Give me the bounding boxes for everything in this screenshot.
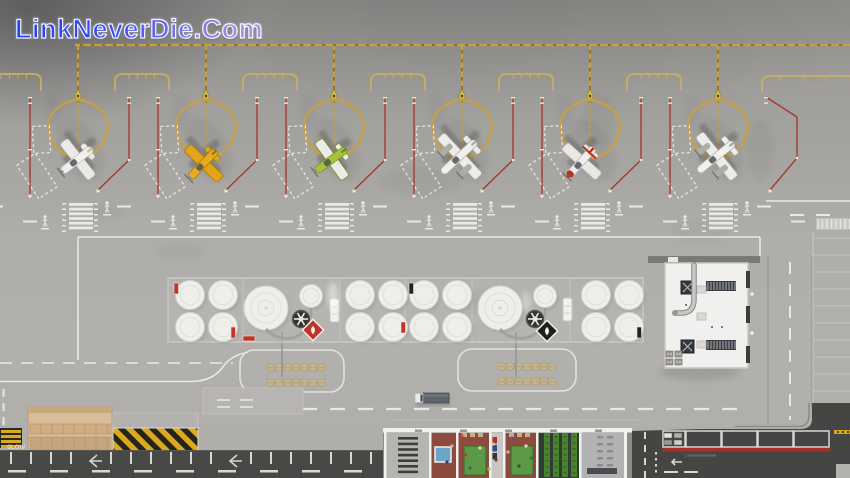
crosswalk-stripe bbox=[709, 227, 733, 230]
person[interactable] bbox=[524, 444, 527, 447]
cargo-pallet[interactable] bbox=[301, 364, 308, 371]
loading-door[interactable] bbox=[746, 271, 750, 288]
fuel-tank-large[interactable] bbox=[478, 286, 522, 330]
person[interactable] bbox=[478, 446, 481, 449]
parking-canopy[interactable] bbox=[816, 218, 850, 230]
person[interactable] bbox=[445, 460, 448, 463]
warehouse-building[interactable] bbox=[648, 256, 760, 380]
pedestrian-icon bbox=[553, 215, 561, 229]
yellow-crosswalk-bar bbox=[1, 440, 21, 443]
fuel-tank-large[interactable] bbox=[244, 286, 288, 330]
crosswalk-stripe bbox=[581, 222, 605, 225]
terminal-building[interactable] bbox=[383, 428, 632, 478]
fuel-tank-small[interactable] bbox=[176, 281, 205, 310]
person[interactable] bbox=[468, 466, 471, 469]
depot-red-line bbox=[663, 448, 830, 452]
crosswalk-stripe bbox=[197, 217, 221, 220]
crosswalk-stripe bbox=[581, 203, 605, 206]
crosswalk-stripe bbox=[197, 222, 221, 225]
cargo-pallet[interactable] bbox=[541, 378, 548, 385]
hazard-tag bbox=[243, 336, 255, 341]
fuel-tank-small[interactable] bbox=[615, 281, 644, 310]
fuel-tank-aux[interactable] bbox=[534, 285, 557, 308]
equipment-area-outline bbox=[529, 153, 569, 199]
person[interactable] bbox=[464, 453, 467, 456]
crosswalk-stripe bbox=[69, 203, 93, 206]
crosswalk-stripe bbox=[197, 208, 221, 211]
vehicle-depot[interactable] bbox=[632, 403, 850, 478]
hazard-striped-zone bbox=[113, 428, 198, 452]
crosswalk-stripe bbox=[325, 227, 349, 230]
terminal-door[interactable] bbox=[505, 430, 512, 433]
fuel-tank-small[interactable] bbox=[582, 281, 611, 310]
fuel-tank-small[interactable] bbox=[346, 313, 375, 342]
pedestrian-icon bbox=[169, 215, 177, 229]
roof-vent-panel bbox=[706, 340, 736, 350]
crosswalk-stripe bbox=[69, 212, 93, 215]
loading-door[interactable] bbox=[746, 346, 750, 363]
fuel-tank-small[interactable] bbox=[443, 313, 472, 342]
cargo-pallet[interactable] bbox=[549, 378, 556, 385]
crosswalk-stripe bbox=[197, 212, 221, 215]
cargo-pallet[interactable] bbox=[276, 379, 283, 386]
loading-door[interactable] bbox=[746, 306, 750, 323]
terminal-room-shelves[interactable] bbox=[386, 433, 431, 478]
crosswalk-stripe bbox=[69, 222, 93, 225]
crosswalk-stripe bbox=[453, 203, 477, 206]
street-terminal-depot[interactable] bbox=[0, 388, 850, 478]
roof-vent-panel bbox=[706, 281, 736, 291]
person[interactable] bbox=[491, 442, 494, 445]
cargo-pallet[interactable] bbox=[532, 363, 539, 370]
crosswalk-stripe bbox=[453, 227, 477, 230]
equipment-area-outline bbox=[17, 153, 57, 199]
cargo-pallet[interactable] bbox=[498, 363, 505, 370]
slow-road-marking: SLOW bbox=[7, 445, 25, 451]
fuel-tank-small[interactable] bbox=[209, 281, 238, 310]
person[interactable] bbox=[494, 458, 497, 461]
cargo-pallet[interactable] bbox=[310, 379, 317, 386]
crosswalk-stripe bbox=[709, 217, 733, 220]
equipment-area-outline bbox=[145, 153, 185, 199]
pedestrian-icon bbox=[743, 201, 751, 215]
watermark: LinkNeverDie.Com bbox=[15, 14, 263, 45]
crosswalk-stripe bbox=[453, 212, 477, 215]
terminal-room-table[interactable] bbox=[505, 433, 538, 478]
hazard-tag bbox=[174, 283, 179, 294]
hazard-tag bbox=[409, 283, 414, 294]
cargo-pallet[interactable] bbox=[507, 363, 514, 370]
crosswalk-stripe bbox=[581, 227, 605, 230]
pedestrian-icon bbox=[297, 215, 305, 229]
fuel-farm[interactable] bbox=[168, 278, 646, 344]
fuel-tank-small[interactable] bbox=[346, 281, 375, 310]
cargo-pallet[interactable] bbox=[532, 378, 539, 385]
cargo-pallet[interactable] bbox=[293, 379, 300, 386]
cargo-pallet[interactable] bbox=[541, 363, 548, 370]
crosswalk-stripe bbox=[325, 208, 349, 211]
fuel-tank-small[interactable] bbox=[379, 281, 408, 310]
roads-and-parking bbox=[768, 218, 850, 425]
terminal-door[interactable] bbox=[550, 430, 557, 433]
equipment-area-outline bbox=[273, 153, 313, 199]
fuel-tank-small[interactable] bbox=[443, 281, 472, 310]
person[interactable] bbox=[517, 464, 520, 467]
yellow-crosswalk-bar bbox=[1, 430, 21, 433]
crosswalk-stripe bbox=[581, 208, 605, 211]
fuel-tank-small[interactable] bbox=[410, 281, 439, 310]
valve-wheel[interactable] bbox=[527, 311, 544, 328]
crosswalk-stripe bbox=[325, 222, 349, 225]
fuel-tank-aux[interactable] bbox=[300, 285, 323, 308]
game-world-viewport[interactable]: SLOW bbox=[0, 0, 850, 478]
cargo-pallet[interactable] bbox=[284, 364, 291, 371]
cargo-pallet[interactable] bbox=[515, 378, 522, 385]
crosswalk-stripe bbox=[69, 217, 93, 220]
hazard-tag bbox=[637, 327, 642, 338]
crosswalk-stripe bbox=[197, 203, 221, 206]
cargo-pallet[interactable] bbox=[267, 379, 274, 386]
person[interactable] bbox=[529, 456, 532, 459]
crosswalk-stripe bbox=[325, 212, 349, 215]
crosswalk-stripe bbox=[197, 227, 221, 230]
staging-area[interactable] bbox=[240, 350, 344, 392]
crosswalk-stripe bbox=[69, 208, 93, 211]
pedestrian-icon bbox=[41, 215, 49, 229]
cargo-pallet[interactable] bbox=[310, 364, 317, 371]
cargo-pallet[interactable] bbox=[318, 364, 325, 371]
terminal-room-table[interactable] bbox=[458, 433, 491, 478]
cargo-pallet[interactable] bbox=[284, 379, 291, 386]
crosswalk-stripe bbox=[709, 203, 733, 206]
pedestrian-icon bbox=[615, 201, 623, 215]
crosswalk-stripe bbox=[325, 217, 349, 220]
hazard-tag bbox=[231, 327, 236, 338]
pedestrian-icon bbox=[487, 201, 495, 215]
terminal-door[interactable] bbox=[595, 430, 602, 433]
hazard-tag bbox=[401, 322, 406, 333]
equipment-area-outline bbox=[657, 153, 697, 199]
crosswalk-stripe bbox=[69, 227, 93, 230]
shop-building[interactable] bbox=[28, 407, 112, 452]
cargo-pallet[interactable] bbox=[498, 378, 505, 385]
street bbox=[0, 450, 385, 478]
fuel-tank-small[interactable] bbox=[410, 313, 439, 342]
crosswalk-stripe bbox=[453, 222, 477, 225]
service-truck[interactable] bbox=[415, 393, 450, 406]
person[interactable] bbox=[510, 436, 513, 439]
awning bbox=[30, 437, 110, 450]
cargo-pallet[interactable] bbox=[524, 363, 531, 370]
yellow-crosswalk-bar bbox=[1, 435, 21, 438]
pedestrian-icon bbox=[231, 201, 239, 215]
crosswalk-stripe bbox=[581, 217, 605, 220]
person[interactable] bbox=[460, 434, 463, 437]
game-screenshot: LinkNeverDie.Com SLOW bbox=[0, 0, 850, 478]
terminal-room-vend[interactable] bbox=[491, 433, 505, 478]
fuel-tank-small[interactable] bbox=[176, 313, 205, 342]
staging-area[interactable] bbox=[458, 349, 576, 391]
terminal-door[interactable] bbox=[415, 430, 422, 433]
crosswalk-stripe bbox=[453, 217, 477, 220]
cargo-pallet[interactable] bbox=[301, 379, 308, 386]
crosswalk-stripe bbox=[709, 212, 733, 215]
pedestrian-icon bbox=[359, 201, 367, 215]
person[interactable] bbox=[506, 450, 509, 453]
cargo-pallet[interactable] bbox=[267, 364, 274, 371]
pedestrian-icon bbox=[425, 215, 433, 229]
cargo-pallet[interactable] bbox=[293, 364, 300, 371]
fuel-tank-small[interactable] bbox=[582, 313, 611, 342]
awning bbox=[30, 424, 110, 434]
crosswalk-stripe bbox=[709, 222, 733, 225]
crosswalk-stripe bbox=[325, 203, 349, 206]
crosswalk-stripe bbox=[581, 212, 605, 215]
cargo-pallet[interactable] bbox=[507, 378, 514, 385]
terminal-room-office[interactable] bbox=[581, 433, 625, 478]
cargo-pallet[interactable] bbox=[524, 378, 531, 385]
person[interactable] bbox=[450, 444, 453, 447]
cargo-pallet[interactable] bbox=[549, 363, 556, 370]
person[interactable] bbox=[487, 467, 490, 470]
crosswalk-stripe bbox=[709, 208, 733, 211]
crosswalk-stripe bbox=[453, 208, 477, 211]
cargo-pallet[interactable] bbox=[318, 379, 325, 386]
terminal-room-pool[interactable] bbox=[431, 433, 458, 478]
terminal-door[interactable] bbox=[460, 430, 467, 433]
terminal-room-garden[interactable] bbox=[538, 433, 581, 478]
fuel-pump[interactable] bbox=[563, 298, 572, 321]
